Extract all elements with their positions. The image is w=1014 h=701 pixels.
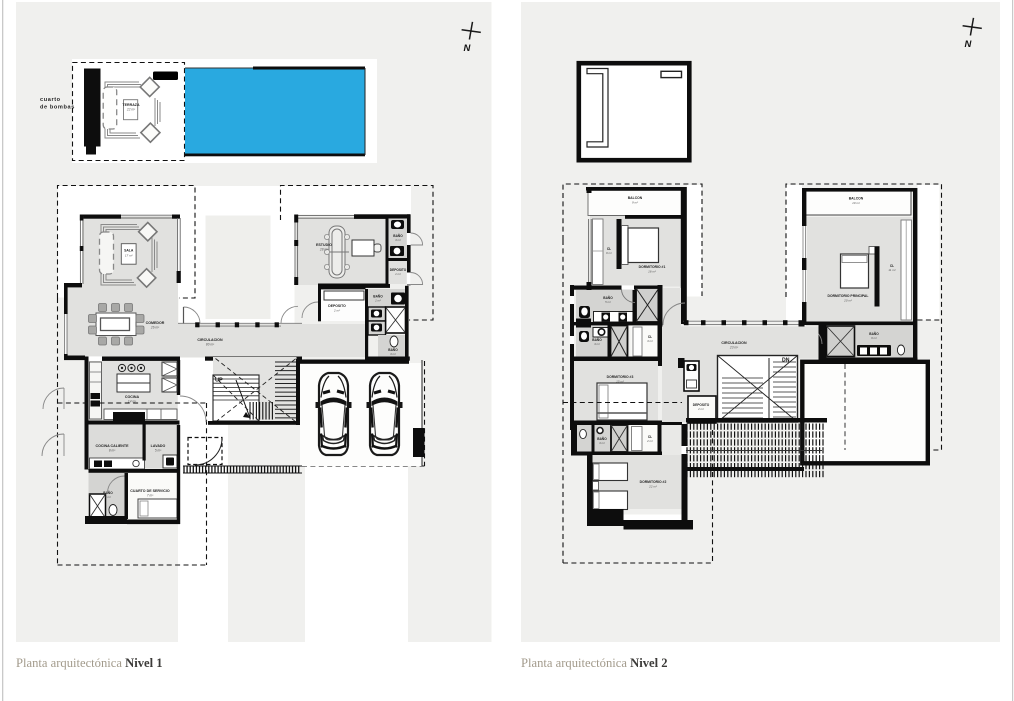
svg-text:3 m²: 3 m² [390, 352, 397, 356]
svg-text:DN: DN [782, 358, 790, 364]
svg-text:DEPOSITO: DEPOSITO [328, 304, 346, 308]
svg-text:7 m²: 7 m² [147, 494, 154, 498]
svg-text:1 m²: 1 m² [375, 299, 382, 303]
svg-text:SALA: SALA [124, 249, 134, 253]
svg-text:17 m²: 17 m² [125, 254, 134, 258]
svg-text:Planta arquitectónica Nivel 2: Planta arquitectónica Nivel 2 [521, 656, 668, 670]
svg-text:26 m²: 26 m² [150, 326, 160, 330]
svg-text:TERRAZA: TERRAZA [122, 103, 140, 107]
svg-text:DORMITORIO #3: DORMITORIO #3 [607, 375, 634, 379]
svg-text:5 m²: 5 m² [155, 449, 162, 453]
svg-text:8 m²: 8 m² [109, 449, 116, 453]
svg-text:3 m²: 3 m² [647, 339, 654, 343]
svg-text:5 m²: 5 m² [105, 495, 112, 499]
svg-text:cuarto: cuarto [40, 97, 61, 103]
svg-text:10 m²: 10 m² [852, 201, 861, 205]
svg-text:COCINA CALIENTE: COCINA CALIENTE [95, 444, 129, 448]
svg-text:23 m²: 23 m² [729, 346, 739, 350]
svg-text:DORMITORIO PRINCIPAL: DORMITORIO PRINCIPAL [828, 294, 869, 298]
svg-text:COCINA: COCINA [125, 395, 140, 399]
svg-text:3 m²: 3 m² [395, 238, 402, 242]
svg-text:28 m²: 28 m² [319, 248, 329, 252]
svg-text:CUARTO DE SERVICIO: CUARTO DE SERVICIO [130, 489, 170, 493]
svg-text:N: N [965, 39, 973, 50]
svg-text:9 m²: 9 m² [632, 200, 639, 204]
svg-text:2 m²: 2 m² [646, 439, 654, 443]
svg-text:2 m²: 2 m² [333, 309, 341, 313]
svg-text:1 m²: 1 m² [395, 272, 402, 276]
svg-text:11 m²: 11 m² [888, 268, 896, 272]
svg-text:CIRCULACION: CIRCULACION [197, 338, 223, 342]
svg-text:ESTUDIO: ESTUDIO [316, 243, 332, 247]
svg-text:5 m²: 5 m² [605, 300, 612, 304]
svg-text:DORMITORIO #1: DORMITORIO #1 [639, 265, 666, 269]
svg-text:3 m²: 3 m² [599, 441, 606, 445]
svg-text:LAVADO: LAVADO [151, 444, 166, 448]
svg-text:6 m²: 6 m² [606, 251, 613, 255]
svg-text:20 m²: 20 m² [843, 298, 853, 302]
svg-text:16 m²: 16 m² [648, 269, 657, 273]
svg-text:CIRCULACION: CIRCULACION [721, 341, 747, 345]
svg-text:N: N [464, 43, 472, 54]
svg-text:4 m²: 4 m² [594, 342, 601, 346]
svg-text:2 m²: 2 m² [697, 407, 705, 411]
svg-text:DORMITORIO #2: DORMITORIO #2 [640, 480, 667, 484]
svg-text:COMEDOR: COMEDOR [146, 321, 165, 325]
svg-text:22 m²: 22 m² [126, 108, 136, 112]
svg-text:22 m²: 22 m² [648, 484, 658, 488]
svg-text:de bombas: de bombas [40, 105, 75, 111]
svg-text:9 m²: 9 m² [871, 336, 878, 340]
svg-text:80 m²: 80 m² [206, 343, 215, 347]
svg-text:Planta arquitectónica Nivel 1: Planta arquitectónica Nivel 1 [16, 656, 163, 670]
